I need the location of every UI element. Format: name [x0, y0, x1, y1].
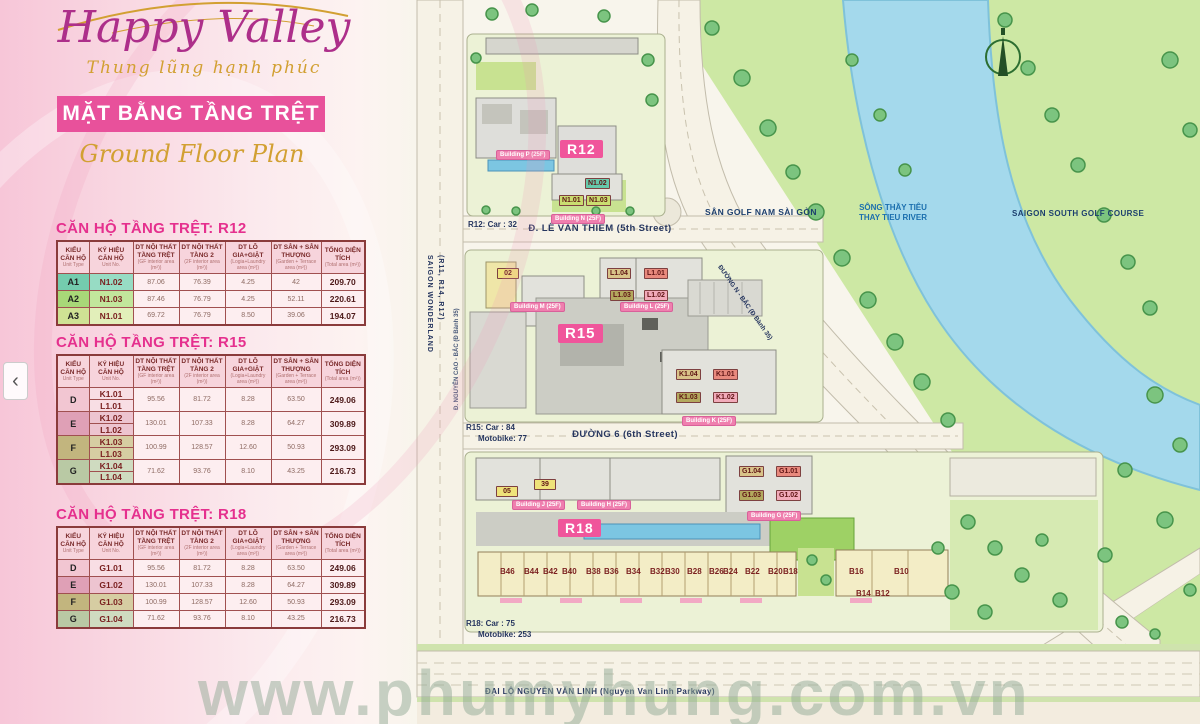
- column-header: DT LÔ GIA+GIẶT(Logia+Laundry area (m²)): [225, 241, 271, 274]
- area-cell: 71.62: [133, 611, 179, 628]
- unit-no-cell: L1.01: [89, 400, 133, 412]
- total-area-cell: 309.89: [321, 412, 365, 436]
- table-row: DK1.0195.5681.728.2863.50249.06: [57, 388, 365, 400]
- nguyen-cao-street-label: Đ. NGUYỄN CAO - BẮC (Đ Bành 35): [454, 308, 460, 410]
- unit-type-cell: G: [57, 611, 89, 628]
- wonderland-label: SAIGON WONDERLAND (R11, R14, R17): [424, 255, 446, 435]
- shophouse-label-b20: B20: [768, 567, 783, 576]
- table-title-r15: CĂN HỘ TẦNG TRỆT: R15: [56, 334, 368, 351]
- unit-type-cell: D: [57, 388, 89, 412]
- area-cell: 8.10: [225, 460, 271, 484]
- column-header: DT NỘI THẤT TẦNG 2(2F interior area (m²)…: [179, 355, 225, 388]
- area-cell: 43.25: [271, 460, 321, 484]
- table-row: FG1.03100.99128.5712.6050.93293.09: [57, 594, 365, 611]
- area-cell: 42: [271, 274, 321, 291]
- river-label-en: THAY TIEU RIVER: [843, 213, 943, 223]
- shophouse-label-b38: B38: [586, 567, 601, 576]
- building-chip: Building M (25F): [510, 302, 565, 312]
- area-cell: 63.50: [271, 560, 321, 577]
- column-header: KÝ HIỆU CĂN HỘUnit No.: [89, 241, 133, 274]
- table-row: FK1.03100.99128.5712.6050.93293.09: [57, 436, 365, 448]
- r15-parking-stats: R15: Car : 84 Motobike: 77: [466, 422, 527, 444]
- unit-chip-l1.03: L1.03: [610, 290, 634, 301]
- page-title-vn: MẶT BẰNG TẦNG TRỆT: [57, 96, 325, 132]
- unit-chip-02: 02: [497, 268, 519, 279]
- river-label-vn: SÔNG THẦY TIÊU: [843, 203, 943, 213]
- area-cell: 39.06: [271, 308, 321, 325]
- unit-no-cell: L1.02: [89, 424, 133, 436]
- wonderland-label-line2: (R11, R14, R17): [435, 255, 446, 435]
- table-row: A3N1.0169.7276.798.5039.06194.07: [57, 308, 365, 325]
- unit-chip-g1.03: G1.03: [739, 490, 764, 501]
- unit-no-cell: N1.01: [89, 308, 133, 325]
- parkway-label: ĐẠI LỘ NGUYỄN VĂN LINH (Nguyen Van Linh …: [470, 687, 730, 696]
- unit-chip-n1.02: N1.02: [585, 178, 610, 189]
- unit-no-cell: G1.04: [89, 611, 133, 628]
- unit-type-cell: E: [57, 412, 89, 436]
- unit-type-cell: D: [57, 560, 89, 577]
- area-cell: 8.28: [225, 388, 271, 412]
- prev-arrow-button[interactable]: ‹: [3, 362, 28, 400]
- area-cell: 130.01: [133, 412, 179, 436]
- column-header: DT NỘI THẤT TẦNG 2(2F interior area (m²)…: [179, 241, 225, 274]
- unit-no-cell: K1.01: [89, 388, 133, 400]
- area-cell: 63.50: [271, 388, 321, 412]
- r18-block-badge: R18: [558, 519, 601, 537]
- area-cell: 52.11: [271, 291, 321, 308]
- unit-chip-k1.01: K1.01: [713, 369, 738, 380]
- unit-type-cell: F: [57, 594, 89, 611]
- shophouse-label-b14: B14: [856, 589, 871, 598]
- area-cell: 93.76: [179, 611, 225, 628]
- unit-no-cell: K1.04: [89, 460, 133, 472]
- table-row: GK1.0471.6293.768.1043.25216.73: [57, 460, 365, 472]
- area-cell: 81.72: [179, 388, 225, 412]
- unit-chip-n1.01: N1.01: [559, 195, 584, 206]
- golf-right-label: SAIGON SOUTH GOLF COURSE: [1012, 209, 1144, 218]
- unit-type-cell: G: [57, 460, 89, 484]
- table-row: EG1.02130.01107.338.2864.27309.89: [57, 577, 365, 594]
- street5-label: Đ. LÊ VĂN THIÊM (5th Street): [500, 223, 700, 234]
- area-cell: 93.76: [179, 460, 225, 484]
- area-cell: 8.28: [225, 412, 271, 436]
- r18-parking-stats: R18: Car : 75 Motobike: 253: [466, 618, 531, 640]
- r15-car-count: R15: Car : 84: [466, 422, 527, 433]
- shophouse-label-b36: B36: [604, 567, 619, 576]
- unit-no-cell: G1.01: [89, 560, 133, 577]
- total-area-cell: 309.89: [321, 577, 365, 594]
- table-title-r12: CĂN HỘ TẦNG TRỆT: R12: [56, 220, 368, 237]
- area-cell: 50.93: [271, 594, 321, 611]
- shophouse-label-b26: B26: [709, 567, 724, 576]
- area-cell: 107.33: [179, 412, 225, 436]
- area-cell: 76.79: [179, 308, 225, 325]
- shophouse-label-b10: B10: [894, 567, 909, 576]
- column-header: KIỂU CĂN HỘUnit Type: [57, 241, 89, 274]
- column-header: DT LÔ GIA+GIẶT(Logia+Laundry area (m²)): [225, 527, 271, 560]
- area-cell: 128.57: [179, 436, 225, 460]
- shophouse-label-b32: B32: [650, 567, 665, 576]
- total-area-cell: 216.73: [321, 460, 365, 484]
- unit-table-r15: KIỂU CĂN HỘUnit TypeKÝ HIỆU CĂN HỘUnit N…: [56, 354, 366, 485]
- area-cell: 12.60: [225, 594, 271, 611]
- column-header: DT SÂN + SÂN THƯỢNG(Garden + Terrace are…: [271, 241, 321, 274]
- table-row: A2N1.0387.4676.794.2552.11220.61: [57, 291, 365, 308]
- table-title-r18: CĂN HỘ TẦNG TRỆT: R18: [56, 506, 368, 523]
- area-cell: 100.99: [133, 436, 179, 460]
- info-panel: Happy Valley Thung lũng hạnh phúc MẶT BẰ…: [0, 0, 418, 724]
- area-cell: 107.33: [179, 577, 225, 594]
- area-cell: 95.56: [133, 388, 179, 412]
- unit-no-cell: G1.02: [89, 577, 133, 594]
- area-cell: 87.06: [133, 274, 179, 291]
- golf-left-label: SÂN GOLF NAM SÀI GÒN: [705, 207, 817, 217]
- table-row: EK1.02130.01107.338.2864.27309.89: [57, 412, 365, 424]
- logo-happy-valley: Happy Valley: [44, 2, 364, 54]
- area-cell: 76.79: [179, 291, 225, 308]
- unit-chip-l1.02: L1.02: [644, 290, 668, 301]
- unit-no-cell: K1.02: [89, 412, 133, 424]
- area-cell: 43.25: [271, 611, 321, 628]
- column-header: KÝ HIỆU CĂN HỘUnit No.: [89, 527, 133, 560]
- table-row: A1N1.0287.0676.394.2542209.70: [57, 274, 365, 291]
- r18-motobike-count: Motobike: 253: [466, 629, 531, 640]
- column-header: KÝ HIỆU CĂN HỘUnit No.: [89, 355, 133, 388]
- area-cell: 8.28: [225, 560, 271, 577]
- unit-chip-l1.01: L1.01: [644, 268, 668, 279]
- area-cell: 87.46: [133, 291, 179, 308]
- total-area-cell: 293.09: [321, 594, 365, 611]
- shophouse-label-b30: B30: [665, 567, 680, 576]
- building-chip: Building P (25F): [496, 150, 550, 160]
- building-chip: Building G (25F): [747, 511, 801, 521]
- wonderland-label-line1: SAIGON WONDERLAND: [424, 255, 435, 435]
- column-header: DT NỘI THẤT TẦNG TRỆT(GF interior area (…: [133, 527, 179, 560]
- unit-table-block-r15: CĂN HỘ TẦNG TRỆT: R15 KIỂU CĂN HỘUnit Ty…: [56, 334, 368, 485]
- unit-chip-l1.04: L1.04: [607, 268, 631, 279]
- shophouse-label-b46: B46: [500, 567, 515, 576]
- area-cell: 12.60: [225, 436, 271, 460]
- r18-car-count: R18: Car : 75: [466, 618, 531, 629]
- unit-chip-g1.04: G1.04: [739, 466, 764, 477]
- logo-subtitle: Thung lũng hạnh phúc: [44, 58, 364, 78]
- unit-chip-n1.03: N1.03: [586, 195, 611, 206]
- unit-table-r18: KIỂU CĂN HỘUnit TypeKÝ HIỆU CĂN HỘUnit N…: [56, 526, 366, 629]
- total-area-cell: 209.70: [321, 274, 365, 291]
- area-cell: 50.93: [271, 436, 321, 460]
- area-cell: 71.62: [133, 460, 179, 484]
- shophouse-label-b22: B22: [745, 567, 760, 576]
- building-chip: Building J (25F): [512, 500, 565, 510]
- area-cell: 8.50: [225, 308, 271, 325]
- unit-table-block-r18: CĂN HỘ TẦNG TRỆT: R18 KIỂU CĂN HỘUnit Ty…: [56, 506, 368, 629]
- area-cell: 8.28: [225, 577, 271, 594]
- unit-type-cell: A2: [57, 291, 89, 308]
- building-chip: Building H (25F): [577, 500, 631, 510]
- shophouse-label-b44: B44: [524, 567, 539, 576]
- unit-table-r12: KIỂU CĂN HỘUnit TypeKÝ HIỆU CĂN HỘUnit N…: [56, 240, 366, 326]
- r12-parking-stats: R12: Car : 32: [468, 219, 517, 230]
- building-chip: Building L (25F): [620, 302, 673, 312]
- unit-no-cell: L1.04: [89, 472, 133, 484]
- area-cell: 8.10: [225, 611, 271, 628]
- area-cell: 64.27: [271, 412, 321, 436]
- area-cell: 4.25: [225, 291, 271, 308]
- unit-no-cell: G1.03: [89, 594, 133, 611]
- building-chip: Building N (25F): [551, 214, 605, 224]
- shophouse-label-b28: B28: [687, 567, 702, 576]
- shophouse-label-b40: B40: [562, 567, 577, 576]
- area-cell: 128.57: [179, 594, 225, 611]
- total-area-cell: 249.06: [321, 388, 365, 412]
- total-area-cell: 220.61: [321, 291, 365, 308]
- column-header: DT LÔ GIA+GIẶT(Logia+Laundry area (m²)): [225, 355, 271, 388]
- column-header: DT NỘI THẤT TẦNG TRỆT(GF interior area (…: [133, 355, 179, 388]
- area-cell: 64.27: [271, 577, 321, 594]
- column-header: TỔNG DIỆN TÍCH(Total area (m²)): [321, 527, 365, 560]
- area-cell: 95.56: [133, 560, 179, 577]
- unit-no-cell: K1.03: [89, 436, 133, 448]
- ground-floor-plan-poster: SÂN GOLF NAM SÀI GÒN SÔNG THẦY TIÊU THAY…: [0, 0, 1200, 724]
- page-title-en: Ground Floor Plan: [44, 140, 340, 168]
- unit-type-cell: A3: [57, 308, 89, 325]
- shophouse-label-b42: B42: [543, 567, 558, 576]
- area-cell: 76.39: [179, 274, 225, 291]
- total-area-cell: 293.09: [321, 436, 365, 460]
- table-row: DG1.0195.5681.728.2863.50249.06: [57, 560, 365, 577]
- area-cell: 100.99: [133, 594, 179, 611]
- total-area-cell: 194.07: [321, 308, 365, 325]
- area-cell: 69.72: [133, 308, 179, 325]
- unit-type-cell: A1: [57, 274, 89, 291]
- shophouse-label-b12: B12: [875, 589, 890, 598]
- duong-n-bac-street-label: ĐƯỜNG N - BẮC (Đ Bành 35): [716, 264, 773, 341]
- area-cell: 81.72: [179, 560, 225, 577]
- unit-chip-39: 39: [534, 479, 556, 490]
- unit-chip-05: 05: [496, 486, 518, 497]
- unit-chip-g1.02: G1.02: [776, 490, 801, 501]
- unit-chip-k1.03: K1.03: [676, 392, 701, 403]
- total-area-cell: 216.73: [321, 611, 365, 628]
- shophouse-label-b34: B34: [626, 567, 641, 576]
- column-header: DT NỘI THẤT TẦNG TRỆT(GF interior area (…: [133, 241, 179, 274]
- shophouse-label-b24: B24: [723, 567, 738, 576]
- unit-table-block-r12: CĂN HỘ TẦNG TRỆT: R12 KIỂU CĂN HỘUnit Ty…: [56, 220, 368, 326]
- r15-block-badge: R15: [558, 324, 603, 343]
- column-header: TỔNG DIỆN TÍCH(Total area (m²)): [321, 241, 365, 274]
- r12-block-badge: R12: [560, 140, 603, 158]
- unit-no-cell: L1.03: [89, 448, 133, 460]
- column-header: KIỂU CĂN HỘUnit Type: [57, 355, 89, 388]
- shophouse-label-b16: B16: [849, 567, 864, 576]
- area-cell: 130.01: [133, 577, 179, 594]
- r15-motobike-count: Motobike: 77: [466, 433, 527, 444]
- column-header: DT SÂN + SÂN THƯỢNG(Garden + Terrace are…: [271, 355, 321, 388]
- unit-chip-g1.01: G1.01: [776, 466, 801, 477]
- column-header: KIỂU CĂN HỘUnit Type: [57, 527, 89, 560]
- column-header: DT NỘI THẤT TẦNG 2(2F interior area (m²)…: [179, 527, 225, 560]
- unit-type-cell: F: [57, 436, 89, 460]
- unit-no-cell: N1.03: [89, 291, 133, 308]
- unit-chip-k1.04: K1.04: [676, 369, 701, 380]
- unit-no-cell: N1.02: [89, 274, 133, 291]
- column-header: TỔNG DIỆN TÍCH(Total area (m²)): [321, 355, 365, 388]
- table-row: GG1.0471.6293.768.1043.25216.73: [57, 611, 365, 628]
- column-header: DT SÂN + SÂN THƯỢNG(Garden + Terrace are…: [271, 527, 321, 560]
- unit-chip-k1.02: K1.02: [713, 392, 738, 403]
- building-chip: Building K (25F): [682, 416, 736, 426]
- area-cell: 4.25: [225, 274, 271, 291]
- unit-type-cell: E: [57, 577, 89, 594]
- street6-label: ĐƯỜNG 6 (6th Street): [525, 429, 725, 440]
- total-area-cell: 249.06: [321, 560, 365, 577]
- river-label: SÔNG THẦY TIÊU THAY TIEU RIVER: [843, 203, 943, 223]
- shophouse-label-b18: B18: [783, 567, 798, 576]
